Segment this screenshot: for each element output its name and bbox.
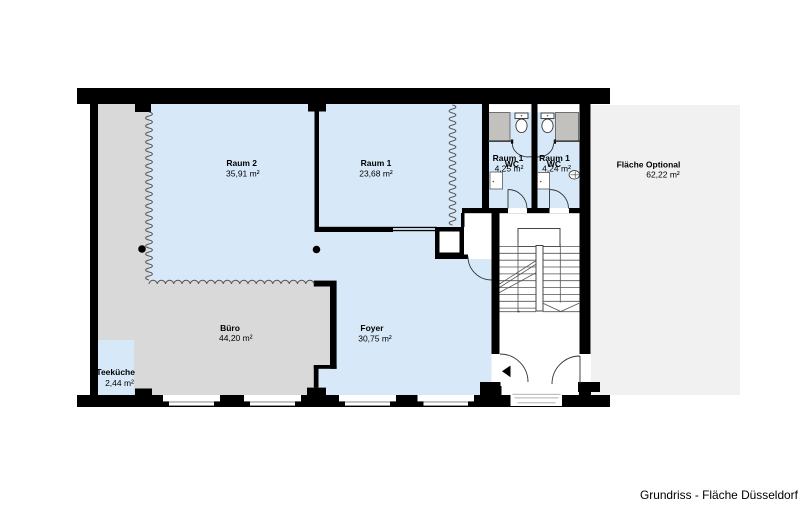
svg-text:62,22 m²: 62,22 m² [646,170,680,180]
svg-text:Fläche Optional: Fläche Optional [617,160,681,170]
svg-text:4,25 m²: 4,25 m² [495,164,524,174]
svg-text:Raum 1: Raum 1 [361,158,392,168]
svg-text:Raum 2: Raum 2 [226,158,257,168]
svg-text:Büro: Büro [220,323,240,333]
svg-text:Foyer: Foyer [360,323,384,333]
svg-text:30,75 m²: 30,75 m² [358,334,392,344]
svg-text:2,44 m²: 2,44 m² [105,378,134,388]
svg-text:4,24 m²: 4,24 m² [542,164,571,174]
svg-text:35,91 m²: 35,91 m² [226,169,260,179]
svg-text:Grundriss - Fläche Düsseldorf: Grundriss - Fläche Düsseldorf [640,488,799,502]
svg-text:44,20 m²: 44,20 m² [219,333,253,343]
svg-text:23,68 m²: 23,68 m² [359,169,393,179]
svg-text:Teeküche: Teeküche [96,367,135,377]
